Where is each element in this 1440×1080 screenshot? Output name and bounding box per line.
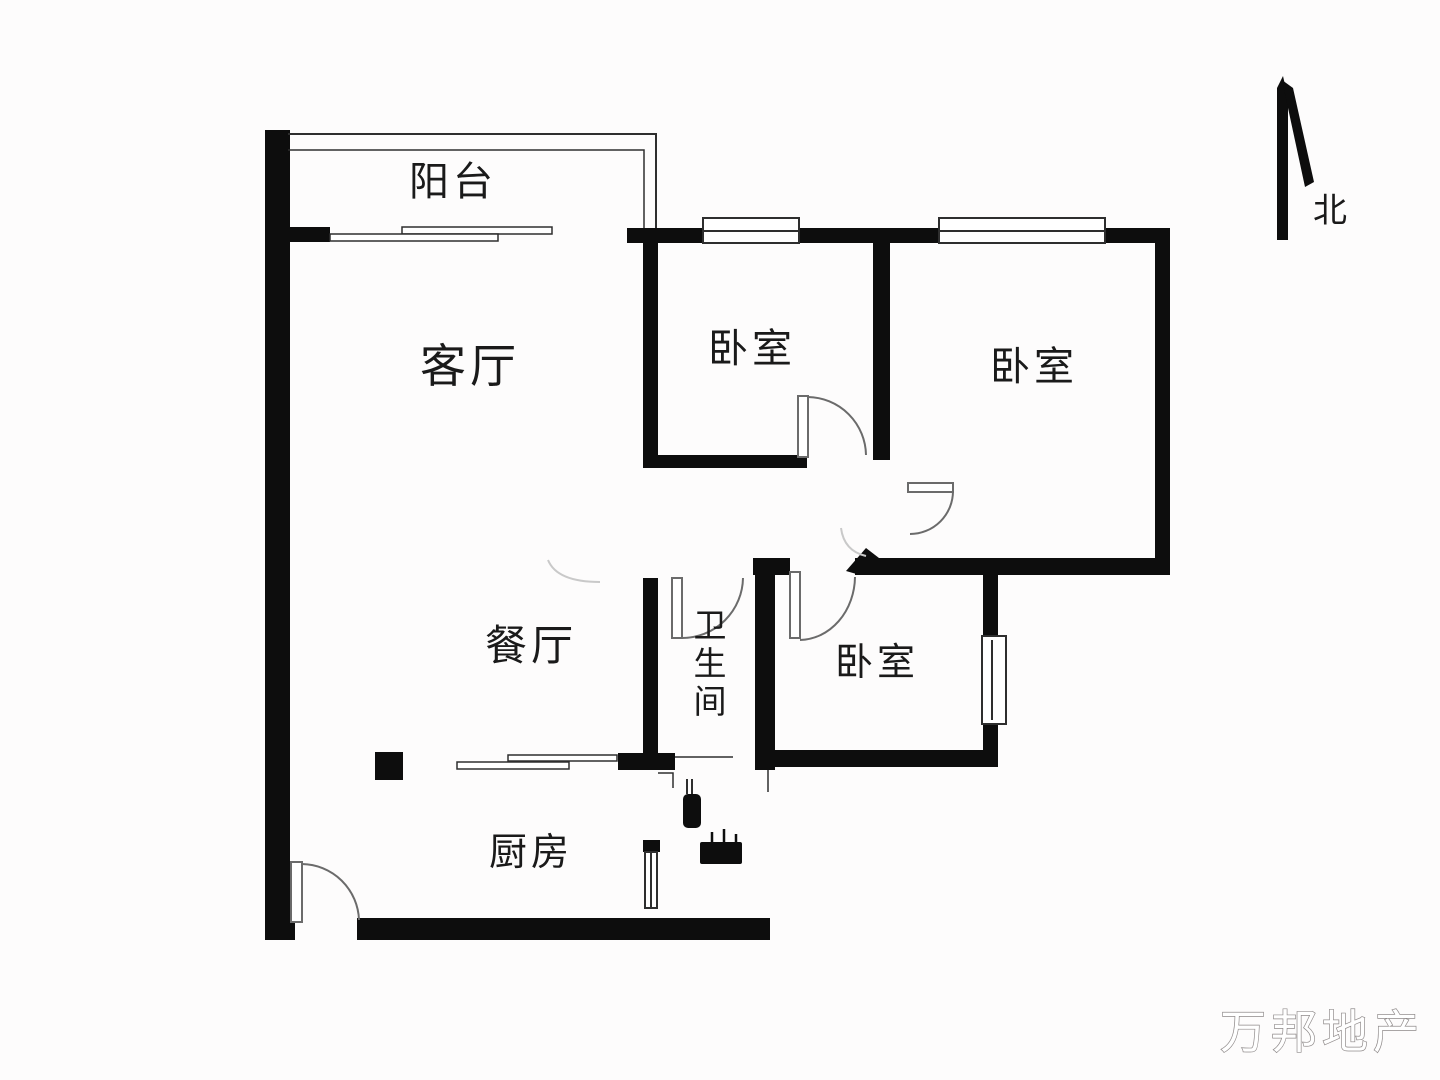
ghost-arc-dining xyxy=(548,560,600,582)
wall-window-cap xyxy=(643,840,660,852)
washer-ticks xyxy=(712,829,736,842)
window-bedroom2 xyxy=(939,218,1105,243)
bath-step-lines xyxy=(658,773,673,788)
balcony-slider-lower xyxy=(330,234,498,241)
wall-bathroom-left xyxy=(643,578,658,755)
wall-outer-bottom xyxy=(357,918,770,940)
wall-bedroom3-bottom xyxy=(755,750,997,767)
kitchen-slider-upper xyxy=(508,755,617,761)
wall-bath-bed3-divider xyxy=(755,558,775,770)
balcony-slider-upper xyxy=(402,227,552,234)
floor-plan-page: 阳台 客厅 卧室 卧室 卧室 餐厅 厨房 卫生间 北 万邦地产 xyxy=(0,0,1440,1080)
kitchen-slider-lower xyxy=(457,762,569,769)
wall-mid-right-segment xyxy=(855,558,1170,575)
label-kitchen: 厨房 xyxy=(489,832,573,874)
label-bathroom: 卫生间 xyxy=(688,608,726,722)
window-kitchen-small xyxy=(645,852,657,908)
label-bedroom-top-right: 卧室 xyxy=(990,344,1078,389)
wall-bedroom1-left xyxy=(643,243,658,468)
label-bedroom-top-middle: 卧室 xyxy=(708,326,796,371)
washer-fixture xyxy=(700,842,742,864)
wall-bedroom1-bottom xyxy=(643,455,807,468)
label-dining-room: 餐厅 xyxy=(485,624,577,670)
fixtures xyxy=(683,794,742,864)
label-north: 北 xyxy=(1313,193,1351,230)
label-bedroom-bottom-right: 卧室 xyxy=(835,642,919,684)
toilet-fixture xyxy=(683,794,701,828)
door-bedroom2 xyxy=(908,483,953,534)
door-bedroom3 xyxy=(790,572,855,640)
toilet-pipe-lines xyxy=(687,779,692,794)
wall-kitchen-top xyxy=(618,753,675,770)
wall-outer-left xyxy=(265,130,290,940)
window-bedroom3-side xyxy=(982,636,1006,724)
walls xyxy=(265,130,1170,940)
north-arrow xyxy=(1277,76,1314,240)
wall-bedroom1-2-shared xyxy=(873,243,890,460)
wall-kitchen-pillar xyxy=(375,752,403,780)
window-bedroom1 xyxy=(703,218,799,243)
label-balcony: 阳台 xyxy=(409,159,497,204)
wall-bedroom2-right xyxy=(1155,243,1170,575)
floor-plan-canvas: 阳台 客厅 卧室 卧室 卧室 餐厅 厨房 卫生间 北 万邦地产 xyxy=(0,0,1440,1080)
label-living-room: 客厅 xyxy=(420,341,520,392)
ghost-arc-hallway xyxy=(841,528,866,556)
ghost-arcs xyxy=(548,528,866,582)
wall-balcony-divider xyxy=(282,227,330,242)
watermark-text: 万邦地产 xyxy=(1220,1007,1424,1058)
north-arrow-shaft xyxy=(1277,76,1288,240)
door-entry xyxy=(291,862,359,922)
door-bedroom1 xyxy=(798,396,866,457)
